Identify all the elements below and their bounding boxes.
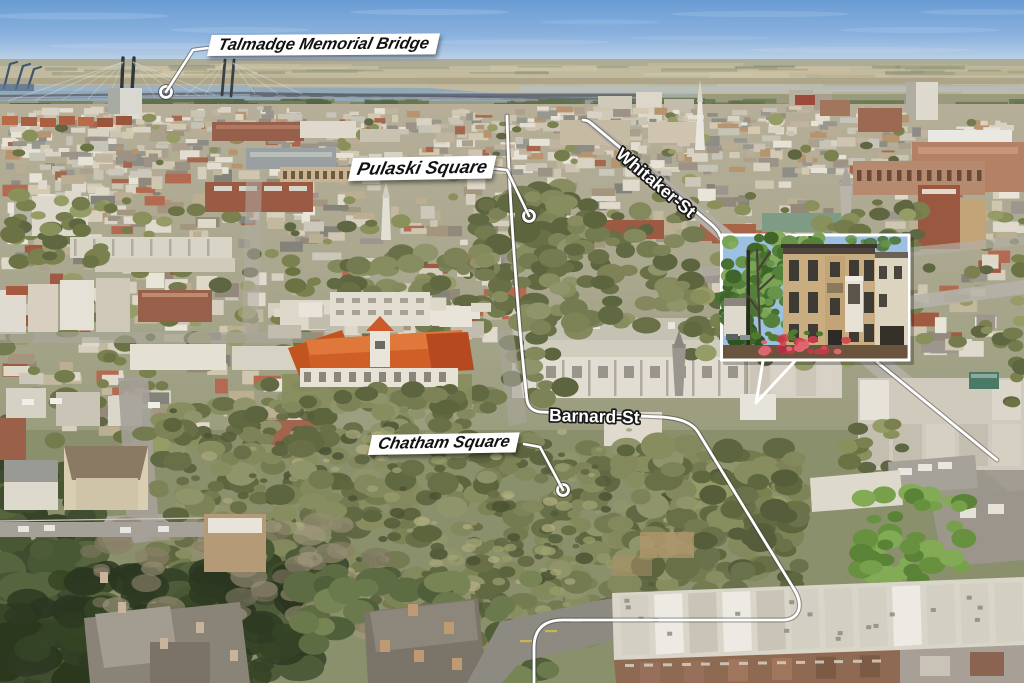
svg-text:Barnard-St: Barnard-St [549, 405, 640, 427]
